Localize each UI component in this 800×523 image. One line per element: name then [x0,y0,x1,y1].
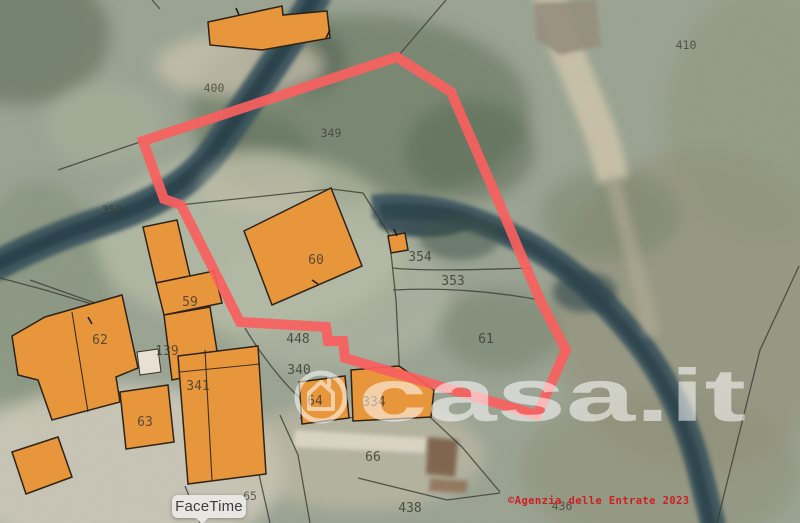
facetime-tooltip: FaceTime [172,495,246,518]
parcel-label: 61 [478,332,494,347]
building-341 [178,346,266,484]
parcel-label: 400 [204,81,225,95]
building-62 [12,295,138,420]
facetime-tooltip-label: FaceTime [175,498,243,515]
parcel-label: 66 [365,450,381,465]
building-60 [244,188,362,305]
parcel-label: 63 [137,415,153,430]
parcel-label: 438 [398,501,421,516]
parcel-label: 62 [92,333,108,348]
parcel-boundary-lines [0,0,799,523]
parcel-label: 60 [308,253,324,268]
cadastre-layer: 410 400 349 350 60 354 353 59 448 61 62 … [0,0,800,523]
building-small-sw [12,437,72,494]
parcel-label: 341 [186,379,209,394]
parcel-label: 448 [286,332,309,347]
parcel-label: 139 [155,344,178,359]
watermark-brand-text: casa.it [358,354,746,437]
cadastral-map-view[interactable]: 410 400 349 350 60 354 353 59 448 61 62 … [0,0,800,523]
parcel-label: 350 [102,203,123,217]
building [208,6,330,50]
parcel-label: 353 [441,274,464,289]
casait-watermark: casa.it [297,354,746,437]
parcel-label: 354 [408,250,432,265]
parcel-label: 349 [321,126,342,140]
building-small-square [388,233,408,253]
building-cluster-a [143,220,190,283]
survey-ticks [88,8,397,324]
parcel-label: 59 [182,295,198,310]
parcel-label: 410 [676,38,697,52]
copyright-text: ©Agenzia delle Entrate 2023 [508,495,689,507]
